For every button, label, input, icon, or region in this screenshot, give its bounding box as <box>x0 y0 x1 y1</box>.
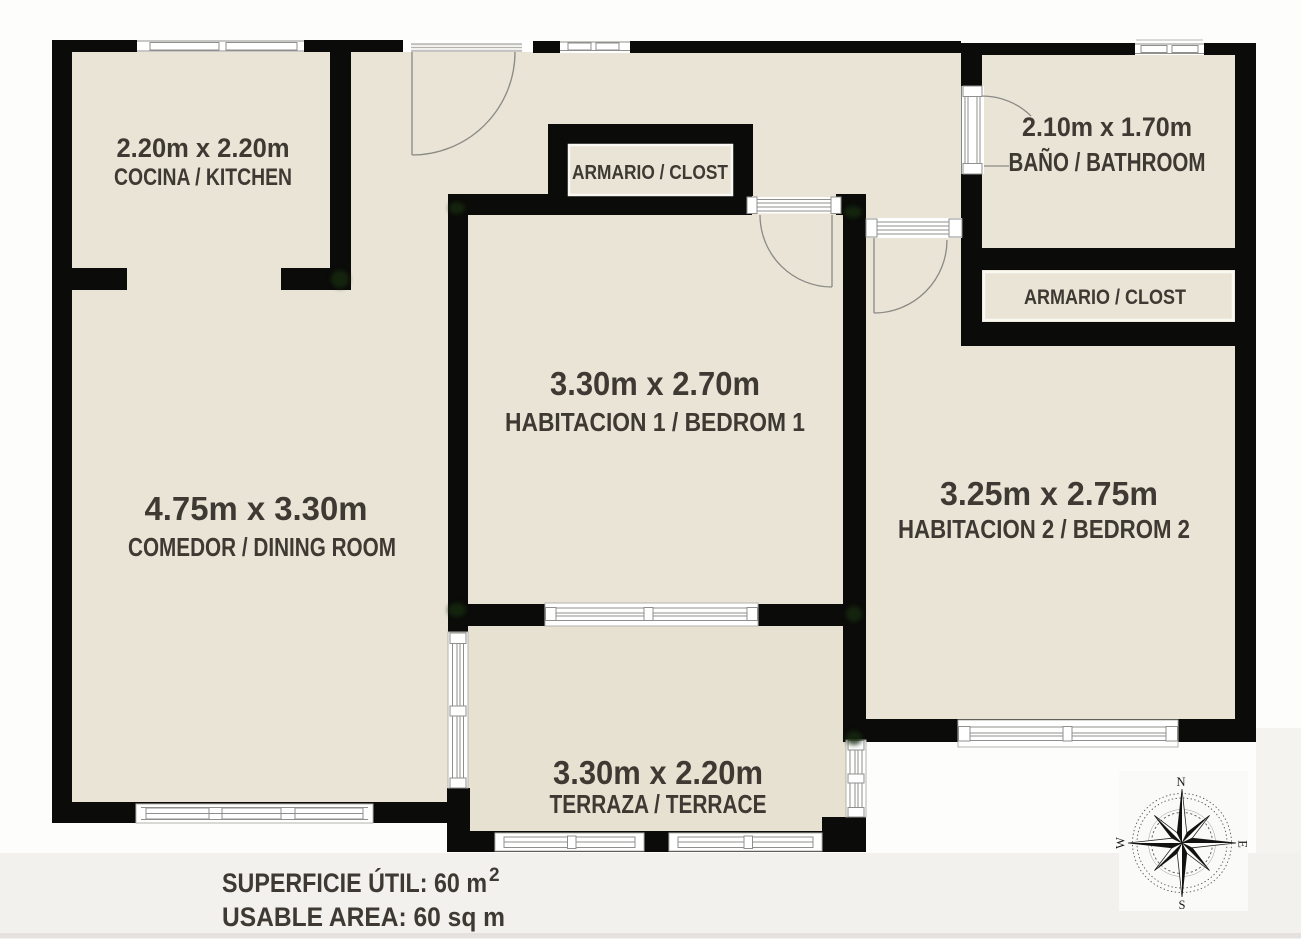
svg-text:BAÑO / BATHROOM: BAÑO / BATHROOM <box>1009 147 1206 177</box>
svg-text:4.75m x 3.30m: 4.75m x 3.30m <box>145 490 368 527</box>
svg-text:3.30m x 2.20m: 3.30m x 2.20m <box>553 754 763 791</box>
svg-text:E: E <box>1236 840 1250 848</box>
svg-text:COCINA / KITCHEN: COCINA / KITCHEN <box>114 164 292 191</box>
svg-text:SUPERFICIE ÚTIL: 60 m: SUPERFICIE ÚTIL: 60 m <box>222 867 487 898</box>
svg-text:3.30m x 2.70m: 3.30m x 2.70m <box>550 365 760 402</box>
svg-text:2.20m x 2.20m: 2.20m x 2.20m <box>117 133 290 163</box>
svg-text:COMEDOR / DINING ROOM: COMEDOR / DINING ROOM <box>128 532 396 562</box>
svg-text:ARMARIO / CLOST: ARMARIO / CLOST <box>572 162 728 184</box>
svg-text:2.10m x 1.70m: 2.10m x 1.70m <box>1022 112 1192 142</box>
svg-text:HABITACION 1 / BEDROM 1: HABITACION 1 / BEDROM 1 <box>505 407 805 437</box>
svg-text:S: S <box>1179 898 1186 912</box>
svg-text:ARMARIO / CLOST: ARMARIO / CLOST <box>1024 286 1186 309</box>
svg-text:TERRAZA / TERRACE: TERRAZA / TERRACE <box>550 789 767 819</box>
svg-text:W: W <box>1114 837 1128 849</box>
svg-text:2: 2 <box>489 865 500 886</box>
svg-text:3.25m x 2.75m: 3.25m x 2.75m <box>940 475 1158 512</box>
svg-text:N: N <box>1176 775 1185 789</box>
svg-text:USABLE AREA: 60 sq m: USABLE AREA: 60 sq m <box>222 902 505 932</box>
svg-text:HABITACION 2 / BEDROM 2: HABITACION 2 / BEDROM 2 <box>898 514 1190 544</box>
